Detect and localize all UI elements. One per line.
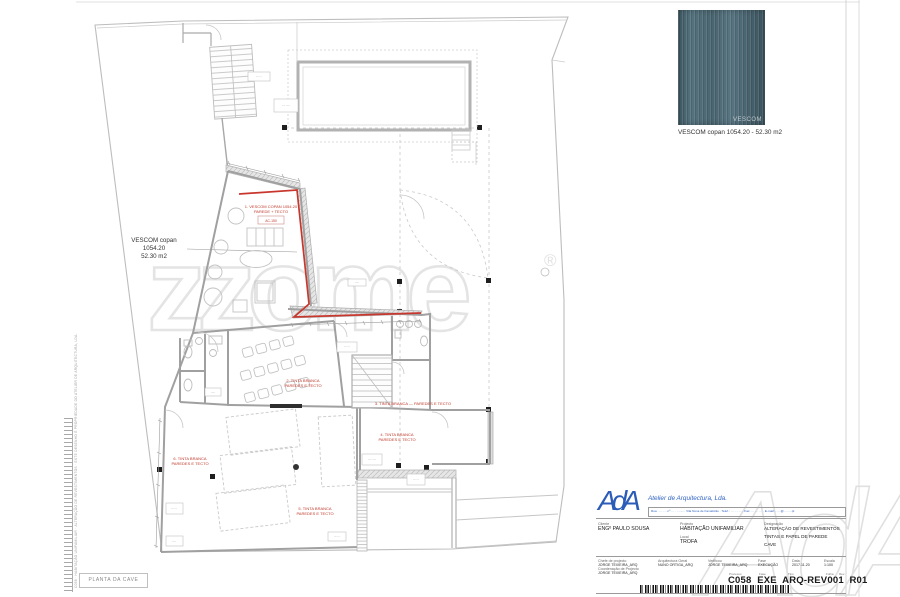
svg-text:·····: ·····	[171, 507, 177, 511]
exterior-stairs	[183, 23, 257, 171]
drawing-sheet: zzome ® AdA	[0, 0, 900, 597]
svg-text:PAREDES E TECTO: PAREDES E TECTO	[296, 511, 333, 516]
scale-value: 1:100	[824, 563, 835, 567]
svg-text:AdA: AdA	[596, 485, 640, 516]
revision-code: R01	[850, 575, 868, 586]
firm-contact-line: Rua ···· ···· nº ··· · ····-··· Vila Nov…	[648, 507, 846, 517]
terrace-lines	[367, 489, 558, 548]
svg-text:····: ····	[355, 281, 360, 285]
svg-text:·····: ·····	[256, 75, 262, 79]
designation-value-2: TINTAS E PAPEL DE PAREDE	[764, 534, 840, 539]
sheet-side-note: C058 · HABITAÇÃO UNIFAMILIAR · ALTERAÇÃO…	[74, 88, 78, 588]
svg-text:PAREDES E TECTO: PAREDES E TECTO	[284, 383, 321, 388]
swatch-caption: VESCOM copan 1054.20 - 52.30 m2	[678, 129, 782, 136]
svg-text:PAREDE + TECTO: PAREDE + TECTO	[254, 209, 288, 214]
phase-block: Fase EXECUÇÃO	[758, 559, 778, 567]
designation-value-1: ALTERAÇÃO DE REVESTIMENTOS	[764, 526, 840, 531]
phase-value: EXECUÇÃO	[758, 563, 778, 567]
client-value: ENGº PAULO SOUSA	[598, 526, 649, 532]
firm-logo: AdA	[596, 484, 652, 518]
barcode	[640, 585, 790, 593]
svg-text:····: ····	[172, 540, 177, 544]
scale-block: Escala 1:100	[824, 559, 835, 567]
project-block: Projecto HABITAÇÃO UNIFAMILIAR Local TRO…	[680, 522, 744, 545]
local-value: TROFA	[680, 539, 744, 545]
swatch-brand-overlay: VESCOM	[733, 117, 762, 123]
plan-title-box: PLANTA DA CAVE	[79, 573, 148, 588]
date-value: 2017.11.20	[792, 563, 810, 567]
svg-text:PAREDES E TECTO: PAREDES E TECTO	[171, 461, 208, 466]
client-block: Cliente ENGº PAULO SOUSA	[598, 522, 649, 532]
material-note-line2: 1054.20	[112, 245, 196, 253]
chief-block: Chefe de projecto JORGE TEIXEIRA_ARQ Coo…	[598, 559, 639, 575]
material-note: VESCOM copan 1054.20 52.30 m2	[112, 237, 196, 261]
beam	[270, 404, 302, 408]
svg-text:·····: ·····	[344, 345, 350, 349]
firm-name: Atelier de Arquitectura, Lda.	[648, 495, 727, 502]
type-code: ARQ-REV001	[782, 575, 844, 586]
divider	[596, 518, 846, 519]
designation-block: Designação ALTERAÇÃO DE REVESTIMENTOS TI…	[764, 522, 840, 547]
pool-steps	[452, 130, 477, 162]
svg-text:3. TINTA BRANCA — PAREDES E TE: 3. TINTA BRANCA — PAREDES E TECTO	[375, 401, 451, 406]
designation-value-3: CAVE	[764, 542, 840, 547]
coordination-value: JORGE TEIXEIRA_ARQ	[598, 571, 639, 575]
divider	[596, 556, 846, 557]
divider	[596, 593, 846, 594]
checked-block: Verificou JORGE TEIXEIRA_ARQ	[708, 559, 747, 567]
material-note-line1: VESCOM copan	[112, 237, 196, 245]
parking-spaces	[216, 409, 356, 531]
column-dot	[293, 464, 299, 470]
edge-scale-ruler	[64, 418, 73, 592]
svg-text:····: ····	[211, 391, 216, 395]
project-value: HABITAÇÃO UNIFAMILIAR	[680, 526, 744, 532]
swatch-texture	[678, 10, 765, 125]
architecture-value: NUNO ORTIGA_ARQ	[658, 563, 693, 567]
svg-text:·····: ·····	[334, 535, 340, 539]
svg-text:·····: ·····	[413, 478, 419, 482]
material-swatch: VESCOM	[678, 10, 765, 125]
date-block: Data 2017.11.20	[792, 559, 810, 567]
checked-value: JORGE TEIXEIRA_ARQ	[708, 563, 747, 567]
material-note-line3: 52.30 m2	[112, 253, 196, 261]
architecture-block: Arquitectura Geral NUNO ORTIGA_ARQ	[658, 559, 693, 567]
svg-text:®: ®	[544, 251, 557, 270]
svg-text:AC-150: AC-150	[265, 219, 277, 223]
svg-text:·······: ·······	[368, 458, 376, 462]
pool	[288, 22, 477, 165]
title-block: AdA Atelier de Arquitectura, Lda. Rua ··…	[596, 484, 846, 594]
svg-text:··· ····: ··· ····	[282, 104, 291, 108]
svg-text:PAREDES E TECTO: PAREDES E TECTO	[378, 437, 415, 442]
